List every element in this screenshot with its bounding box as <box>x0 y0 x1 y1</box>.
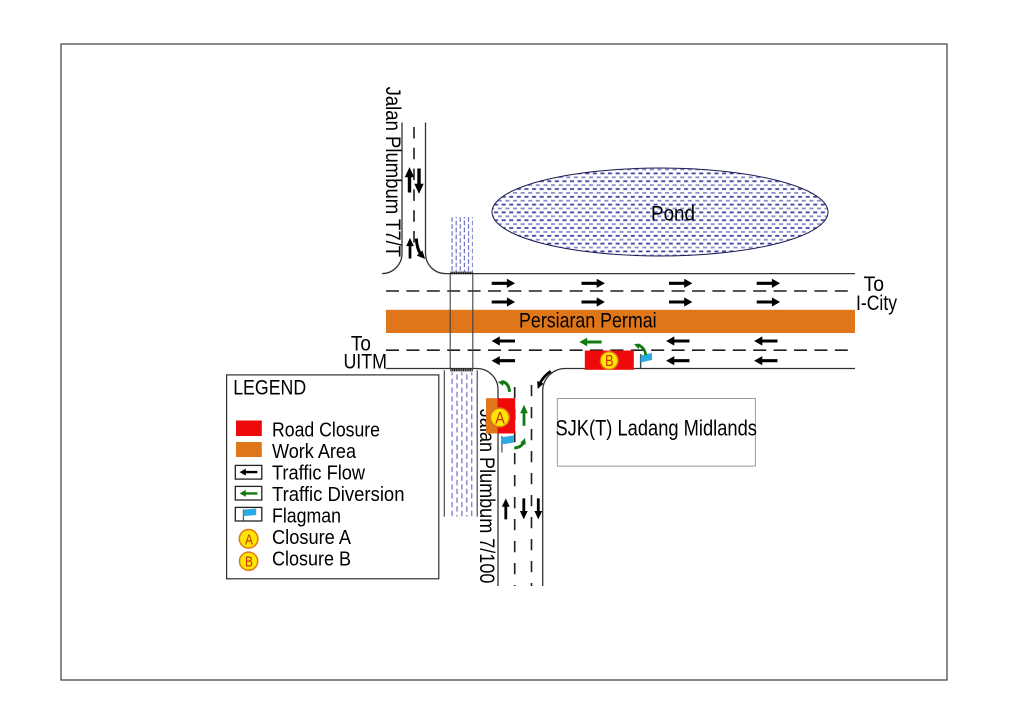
svg-text:Road Closure: Road Closure <box>272 418 380 441</box>
svg-text:Closure A: Closure A <box>272 526 351 549</box>
svg-text:Pond: Pond <box>651 202 695 226</box>
svg-text:A: A <box>245 532 253 549</box>
svg-text:Traffic Diversion: Traffic Diversion <box>272 483 405 506</box>
svg-text:LEGEND: LEGEND <box>233 377 306 400</box>
svg-text:I-City: I-City <box>856 292 897 315</box>
svg-text:Closure B: Closure B <box>272 547 351 570</box>
svg-text:B: B <box>245 555 253 571</box>
svg-text:Work Area: Work Area <box>272 440 357 463</box>
svg-text:A: A <box>495 410 505 428</box>
svg-text:UITM: UITM <box>343 349 387 373</box>
svg-text:Jalan Plumbum 7/100: Jalan Plumbum 7/100 <box>475 409 498 584</box>
svg-text:Traffic Flow: Traffic Flow <box>272 461 365 484</box>
svg-text:Persiaran Permai: Persiaran Permai <box>519 310 657 333</box>
svg-text:Jalan Plumbum T7/T: Jalan Plumbum T7/T <box>381 87 404 258</box>
svg-text:SJK(T) Ladang Midlands: SJK(T) Ladang Midlands <box>555 416 757 441</box>
svg-text:Flagman: Flagman <box>272 504 341 527</box>
svg-text:B: B <box>605 353 614 370</box>
